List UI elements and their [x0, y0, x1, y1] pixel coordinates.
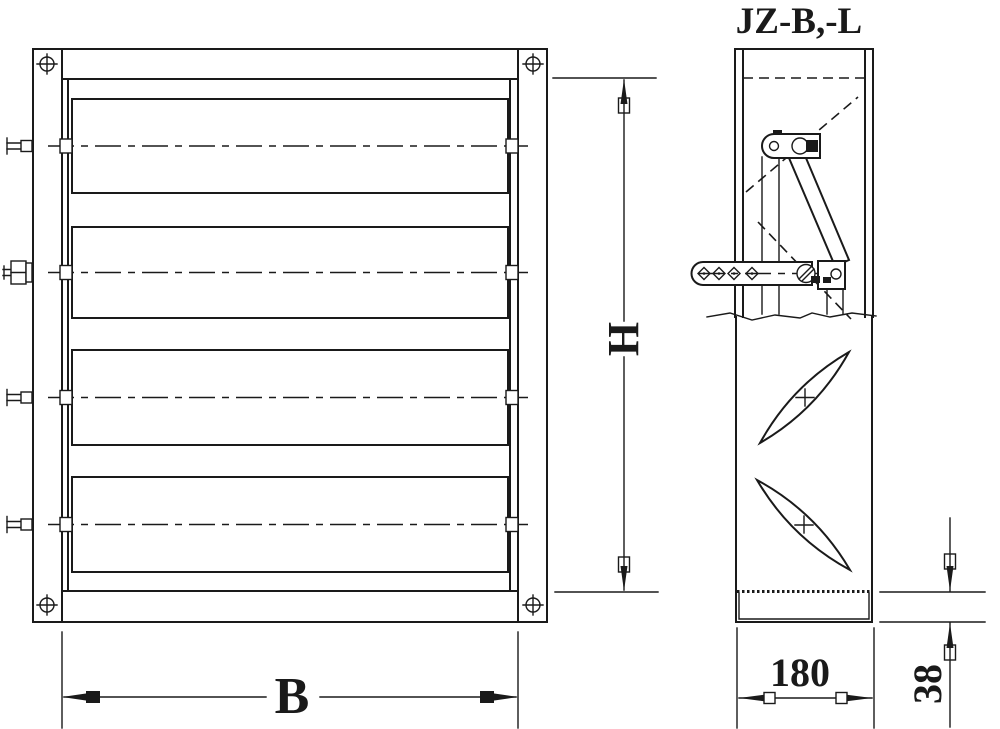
corner-screw-icon [523, 595, 543, 615]
upper-crank-arm [762, 130, 820, 158]
corner-screw-icon [37, 595, 57, 615]
side-frame-lower [736, 317, 872, 622]
louver-blade-row [48, 350, 528, 445]
dimension-H: H [553, 78, 658, 592]
blade-bearings [60, 139, 518, 532]
front-view [3, 49, 547, 622]
blade-pivot-shaft [7, 517, 33, 533]
drawing-title: JZ-B,-L [736, 1, 862, 42]
dimension-180: 180 [737, 628, 874, 728]
blade-pivot-shaft [7, 138, 33, 154]
bottom-flange [737, 592, 871, 620]
drawing-canvas: H B 180 38 JZ-B,-L [0, 0, 1000, 729]
dimension-38: 38 [880, 518, 985, 727]
blade-pivot-shaft [7, 390, 33, 406]
height-dimension-label: H [599, 322, 648, 356]
corner-screw-icon [37, 54, 57, 74]
airfoil-blade-section [757, 480, 850, 570]
louver-blade-row [48, 227, 528, 318]
corner-screw-icon [523, 54, 543, 74]
depth-dimension-label: 180 [770, 650, 830, 695]
side-view [692, 49, 877, 622]
drive-shaft-with-nut [3, 261, 33, 284]
connecting-rod [789, 158, 849, 266]
dimension-B: B [62, 632, 518, 728]
technical-drawing: H B 180 38 JZ-B,-L [0, 0, 1000, 729]
louver-blade-row [48, 99, 528, 193]
blade-linkage-mechanism [692, 130, 850, 314]
width-dimension-label: B [275, 668, 310, 725]
louver-blade-row [48, 477, 528, 572]
airfoil-blade-section [760, 352, 849, 443]
flange-dimension-label: 38 [905, 664, 950, 704]
